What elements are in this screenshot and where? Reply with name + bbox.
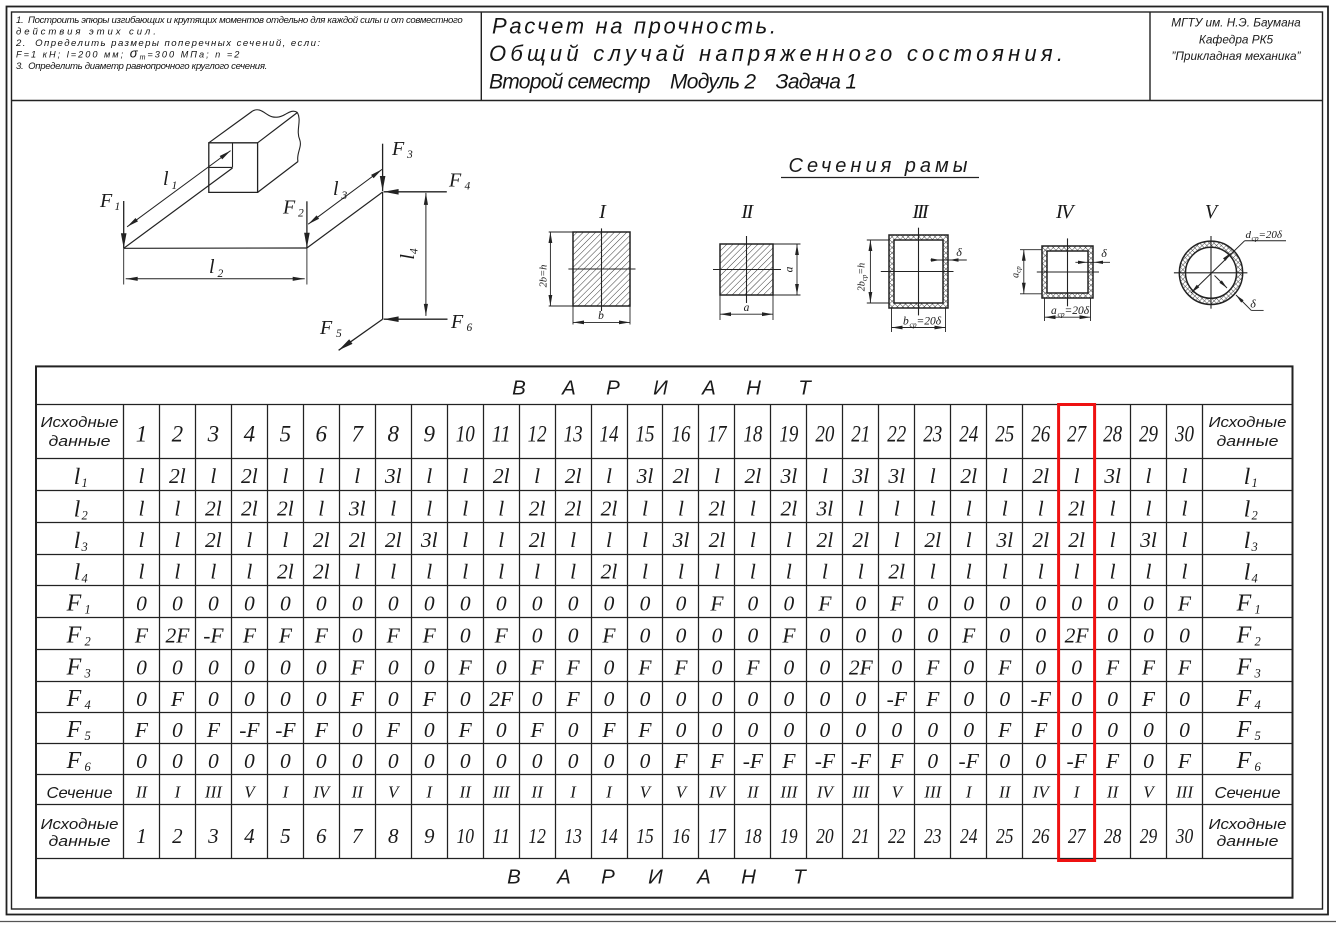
svg-text:0: 0 [963,656,974,680]
svg-text:II: II [135,783,149,802]
svg-text:0: 0 [1107,718,1118,742]
svg-text:F: F [1105,749,1120,773]
svg-text:11: 11 [492,422,511,447]
svg-text:F: F [350,687,365,711]
svg-text:II: II [530,783,544,802]
svg-text:F: F [386,718,401,742]
svg-text:Т: Т [798,377,812,400]
svg-text:0: 0 [208,687,219,711]
svg-text:3l: 3l [780,464,798,488]
svg-text:l: l [966,528,972,552]
svg-text:3l: 3l [420,528,438,552]
svg-text:3: 3 [341,190,348,202]
svg-text:F: F [66,748,82,774]
svg-text:l: l [570,528,576,552]
svg-text:0: 0 [1179,624,1190,648]
svg-text:0: 0 [1035,749,1046,773]
svg-text:l: l [246,528,252,552]
svg-text:0: 0 [1143,624,1154,648]
svg-text:0: 0 [891,718,902,742]
svg-text:данные: данные [1217,834,1279,850]
svg-text:l: l [1146,496,1152,520]
svg-text:0: 0 [1035,656,1046,680]
svg-text:27: 27 [1068,824,1087,848]
svg-text:24: 24 [959,422,978,447]
svg-text:20: 20 [816,824,834,848]
svg-text:l: l [1182,464,1188,488]
svg-text:Исходные: Исходные [1209,415,1287,431]
svg-text:F: F [422,687,437,711]
svg-text:F: F [817,592,832,616]
svg-text:F: F [170,687,185,711]
svg-text:l: l [1244,464,1251,490]
svg-text:F: F [997,718,1012,742]
svg-text:I: I [425,783,433,802]
svg-text:21: 21 [852,824,870,848]
svg-text:l: l [1038,560,1044,584]
svg-text:F: F [494,624,509,648]
svg-text:l: l [498,560,504,584]
svg-text:0: 0 [424,718,435,742]
svg-text:F: F [99,190,113,212]
svg-text:0: 0 [1143,718,1154,742]
svg-text:0: 0 [172,749,183,773]
svg-text:0: 0 [784,687,795,711]
svg-text:0: 0 [244,656,255,680]
svg-text:3l: 3l [672,528,690,552]
svg-text:0: 0 [1071,656,1082,680]
svg-text:3l: 3l [887,464,905,488]
svg-text:15: 15 [636,824,654,848]
svg-text:В: В [512,377,526,400]
svg-text:0: 0 [1071,718,1082,742]
svg-text:2l: 2l [241,496,258,520]
svg-text:3l: 3l [1103,464,1121,488]
svg-text:-F: -F [239,718,260,742]
svg-text:l: l [354,560,360,584]
svg-text:l: l [1244,560,1251,586]
svg-text:F: F [745,656,760,680]
svg-text:l: l [1110,528,1116,552]
svg-text:2: 2 [218,268,224,280]
svg-text:26: 26 [1031,422,1050,447]
svg-text:2: 2 [172,422,184,447]
svg-text:Исходные: Исходные [41,415,119,431]
svg-text:0: 0 [676,718,687,742]
svg-text:V: V [640,783,653,802]
svg-text:F: F [781,624,796,648]
svg-text:0: 0 [1107,687,1118,711]
svg-text:0: 0 [316,687,327,711]
svg-text:Исходные: Исходные [1209,817,1287,833]
svg-text:-F: -F [203,624,224,648]
svg-text:18: 18 [743,422,762,447]
svg-text:Р: Р [606,377,620,400]
svg-text:0: 0 [388,592,399,616]
svg-text:V: V [388,783,401,802]
svg-text:l: l [210,560,216,584]
svg-text:l: l [966,496,972,520]
svg-text:0: 0 [999,749,1010,773]
svg-text:0: 0 [820,656,831,680]
svg-text:l: l [498,496,504,520]
svg-text:II: II [746,783,760,802]
svg-text:l: l [1038,496,1044,520]
svg-text:Н: Н [741,866,756,889]
svg-text:=20δ: =20δ [917,316,942,328]
svg-text:2F: 2F [165,624,190,648]
svg-text:l: l [1002,496,1008,520]
svg-text:F: F [282,197,296,219]
svg-text:-F: -F [743,749,764,773]
svg-text:1: 1 [85,603,91,617]
svg-text:0: 0 [1143,749,1154,773]
svg-text:МГТУ им. Н.Э. Баумана: МГТУ им. Н.Э. Баумана [1171,16,1301,30]
svg-text:0: 0 [712,656,723,680]
svg-text:b: b [903,316,909,328]
svg-text:l: l [534,560,540,584]
svg-text:И: И [653,377,668,400]
svg-text:l: l [1146,560,1152,584]
svg-text:IV: IV [816,783,836,802]
svg-text:29: 29 [1139,422,1158,447]
svg-text:0: 0 [676,687,687,711]
svg-text:0: 0 [496,718,507,742]
svg-text:l: l [642,560,648,584]
svg-text:Сечения рамы: Сечения рамы [789,155,972,177]
svg-text:2l: 2l [673,464,690,488]
svg-text:F: F [1177,656,1192,680]
svg-text:II: II [740,201,754,223]
svg-text:0: 0 [640,592,651,616]
svg-text:А: А [560,377,576,400]
svg-text:2l: 2l [709,496,726,520]
svg-text:0: 0 [352,749,363,773]
svg-text:F: F [422,624,437,648]
svg-text:F: F [458,656,473,680]
svg-text:6: 6 [467,322,473,334]
svg-text:0: 0 [855,687,866,711]
svg-text:F: F [925,687,940,711]
svg-text:F: F [450,311,464,333]
svg-text:3: 3 [81,540,88,554]
svg-text:l: l [139,560,145,584]
svg-text:l: l [1002,464,1008,488]
svg-text:28: 28 [1103,422,1122,447]
svg-text:0: 0 [712,687,723,711]
svg-text:2l: 2l [817,528,834,552]
svg-text:F: F [134,624,149,648]
svg-text:0: 0 [927,624,938,648]
svg-text:0: 0 [1035,624,1046,648]
svg-text:0: 0 [927,718,938,742]
svg-text:l: l [822,464,828,488]
svg-text:F: F [673,656,688,680]
svg-text:данные: данные [49,434,111,450]
svg-text:Расчет на прочность.: Расчет на прочность. [492,14,776,39]
svg-text:F: F [1105,656,1120,680]
svg-text:6: 6 [316,824,327,848]
svg-text:0: 0 [1071,592,1082,616]
svg-text:6: 6 [85,760,92,774]
svg-text:3: 3 [207,422,220,447]
svg-text:l: l [966,560,972,584]
svg-text:0: 0 [208,592,219,616]
svg-text:0: 0 [784,718,795,742]
svg-text:F: F [709,749,724,773]
svg-text:0: 0 [1035,592,1046,616]
svg-text:3: 3 [84,667,91,681]
svg-text:l: l [74,496,81,522]
svg-text:0: 0 [784,656,795,680]
svg-text:17: 17 [708,824,727,848]
svg-text:5: 5 [336,328,342,340]
svg-text:F: F [448,170,462,192]
svg-text:3l: 3l [384,464,402,488]
svg-text:F: F [781,749,796,773]
svg-text:F: F [889,592,904,616]
svg-text:2: 2 [1252,508,1258,522]
svg-text:F: F [278,624,293,648]
svg-text:5: 5 [280,422,292,447]
svg-text:2bср=h: 2bср=h [857,263,869,291]
svg-text:0: 0 [891,656,902,680]
svg-text:0: 0 [927,592,938,616]
svg-text:0: 0 [280,592,291,616]
svg-text:0: 0 [532,592,543,616]
svg-text:F: F [997,656,1012,680]
svg-text:13: 13 [564,422,583,447]
svg-text:0: 0 [136,592,147,616]
svg-text:δ: δ [1101,246,1107,260]
svg-text:0: 0 [172,656,183,680]
svg-text:l: l [282,528,288,552]
svg-text:F: F [566,687,581,711]
svg-text:0: 0 [388,749,399,773]
svg-text:0: 0 [136,749,147,773]
svg-text:8: 8 [387,422,399,447]
svg-text:I: I [282,783,290,802]
svg-text:2l: 2l [1032,528,1049,552]
svg-text:9: 9 [424,824,435,848]
svg-text:2l: 2l [601,560,618,584]
svg-text:0: 0 [532,624,543,648]
svg-text:F: F [961,624,976,648]
svg-text:2F: 2F [1065,624,1090,648]
svg-text:V: V [892,783,905,802]
svg-text:20: 20 [815,422,834,447]
svg-text:3l: 3l [636,464,654,488]
svg-text:-F: -F [887,687,908,711]
svg-text:21: 21 [851,422,870,447]
svg-text:0: 0 [676,624,687,648]
svg-text:2l: 2l [529,496,546,520]
svg-text:27: 27 [1067,422,1087,447]
svg-text:0: 0 [352,592,363,616]
svg-text:22: 22 [888,824,906,848]
svg-text:l: l [74,560,81,586]
svg-text:F: F [1236,623,1252,649]
svg-text:l: l [1002,560,1008,584]
svg-text:2l: 2l [169,464,186,488]
svg-text:0: 0 [640,749,651,773]
svg-text:l: l [930,560,936,584]
svg-text:V: V [1205,201,1220,223]
svg-text:δ: δ [1250,297,1256,311]
svg-text:III: III [1175,783,1194,802]
svg-text:5: 5 [1255,729,1261,743]
svg-text:Второй семестр Модуль 2: Второй семестр Модуль 2 Задача 1 [489,71,857,94]
svg-text:0: 0 [748,687,759,711]
svg-text:F: F [530,656,545,680]
svg-text:Т: Т [793,866,807,889]
svg-text:F: F [458,718,473,742]
svg-text:l: l [174,528,180,552]
svg-text:F: F [206,718,221,742]
svg-text:А: А [695,866,711,889]
svg-text:22: 22 [887,422,906,447]
svg-text:l: l [822,560,828,584]
svg-text:0: 0 [460,749,471,773]
svg-text:24: 24 [960,824,978,848]
svg-text:0: 0 [999,624,1010,648]
svg-text:l: l [390,496,396,520]
svg-text:И: И [648,866,663,889]
svg-text:0: 0 [244,749,255,773]
svg-text:2l: 2l [493,464,510,488]
svg-text:F: F [673,749,688,773]
svg-text:l: l [678,560,684,584]
svg-text:9: 9 [423,422,435,447]
svg-text:2F: 2F [849,656,874,680]
svg-text:2l: 2l [277,560,294,584]
svg-text:Исходные: Исходные [41,817,119,833]
svg-text:2l: 2l [277,496,294,520]
svg-text:l: l [74,464,81,490]
svg-text:0: 0 [712,718,723,742]
svg-text:23: 23 [923,422,942,447]
svg-text:2l: 2l [852,528,869,552]
svg-text:0: 0 [1071,687,1082,711]
svg-text:0: 0 [1107,624,1118,648]
svg-text:F: F [66,717,82,743]
svg-text:F: F [66,655,82,681]
svg-text:F: F [1177,592,1192,616]
svg-text:l: l [462,464,468,488]
svg-text:IV: IV [1032,783,1052,802]
svg-text:0: 0 [963,687,974,711]
svg-text:29: 29 [1140,824,1158,848]
svg-text:aср: aср [1011,266,1023,278]
svg-text:0: 0 [568,592,579,616]
svg-text:2l: 2l [313,528,330,552]
svg-text:l: l [1146,464,1152,488]
svg-text:IV: IV [708,783,728,802]
svg-text:F: F [391,138,405,160]
svg-text:F: F [66,686,82,712]
svg-text:a: a [1051,305,1057,317]
svg-text:1: 1 [82,476,88,490]
svg-text:-F: -F [851,749,872,773]
svg-text:30: 30 [1174,422,1194,447]
svg-text:a: a [744,302,750,314]
svg-text:14: 14 [600,824,618,848]
svg-text:4: 4 [1252,572,1258,586]
svg-text:0: 0 [352,624,363,648]
svg-text:0: 0 [388,687,399,711]
svg-text:l: l [750,528,756,552]
svg-text:0: 0 [820,687,831,711]
svg-text:0: 0 [784,592,795,616]
svg-text:F: F [601,718,616,742]
svg-text:Р: Р [601,866,615,889]
svg-text:0: 0 [280,687,291,711]
svg-text:l: l [858,560,864,584]
svg-text:0: 0 [820,718,831,742]
svg-text:0: 0 [855,718,866,742]
svg-text:I: I [598,201,607,223]
svg-text:16: 16 [672,422,691,447]
svg-text:6: 6 [1255,760,1262,774]
svg-text:F: F [1141,687,1156,711]
svg-text:F: F [637,656,652,680]
svg-text:l: l [570,560,576,584]
svg-text:А: А [700,377,716,400]
svg-text:0: 0 [244,687,255,711]
svg-text:l: l [534,464,540,488]
svg-text:l: l [1244,496,1251,522]
svg-text:0: 0 [316,749,327,773]
svg-text:0: 0 [172,592,183,616]
svg-text:l: l [1110,560,1116,584]
svg-text:II: II [998,783,1012,802]
svg-text:3: 3 [1251,540,1258,554]
svg-text:10: 10 [456,824,474,848]
svg-text:2l: 2l [1068,496,1085,520]
svg-text:0: 0 [208,656,219,680]
svg-text:l: l [498,528,504,552]
svg-text:0: 0 [748,624,759,648]
svg-text:0: 0 [676,592,687,616]
svg-text:2l: 2l [1068,528,1085,552]
svg-text:0: 0 [280,656,291,680]
svg-text:l: l [390,560,396,584]
svg-text:28: 28 [1104,824,1122,848]
svg-text:3l: 3l [348,496,366,520]
svg-text:l: l [318,496,324,520]
svg-text:3l: 3l [851,464,869,488]
svg-text:2b=h: 2b=h [539,265,550,288]
svg-text:l: l [1074,464,1080,488]
svg-text:3: 3 [207,824,219,848]
svg-text:l: l [678,496,684,520]
svg-text:III: III [204,783,223,802]
svg-text:13: 13 [564,824,582,848]
svg-text:0: 0 [568,749,579,773]
svg-text:V: V [244,783,257,802]
svg-text:В: В [507,866,521,889]
svg-text:0: 0 [604,656,615,680]
svg-text:I: I [1073,783,1081,802]
svg-text:2l: 2l [601,496,618,520]
svg-text:0: 0 [963,592,974,616]
svg-text:0: 0 [640,624,651,648]
svg-text:F: F [889,749,904,773]
svg-text:III: III [923,783,942,802]
svg-text:1: 1 [1252,476,1258,490]
svg-text:=20δ: =20δ [1065,305,1090,317]
svg-text:V: V [676,783,689,802]
